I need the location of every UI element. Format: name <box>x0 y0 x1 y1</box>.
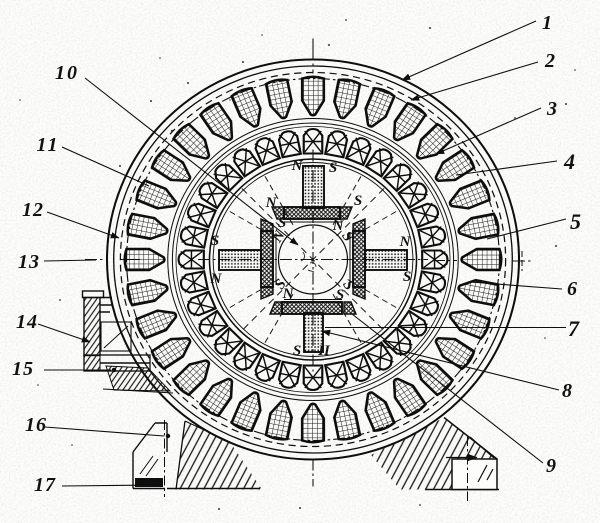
svg-text:2: 2 <box>544 50 555 72</box>
svg-text:15: 15 <box>12 358 34 380</box>
svg-text:4: 4 <box>563 149 575 174</box>
svg-text:N: N <box>291 158 304 174</box>
svg-text:N: N <box>210 271 223 287</box>
svg-text:N: N <box>282 286 295 302</box>
svg-text:11: 11 <box>37 134 60 156</box>
svg-text:9: 9 <box>546 455 556 477</box>
svg-text:14: 14 <box>16 311 38 333</box>
svg-text:10: 10 <box>55 62 79 84</box>
svg-text:12: 12 <box>22 199 44 221</box>
svg-text:S: S <box>329 160 337 176</box>
svg-text:S: S <box>278 215 286 231</box>
svg-text:16: 16 <box>25 414 47 436</box>
svg-text:S: S <box>403 269 411 285</box>
svg-text:13: 13 <box>18 251 40 273</box>
svg-text:3: 3 <box>546 98 557 120</box>
svg-text:17: 17 <box>34 474 56 496</box>
svg-text:1: 1 <box>542 12 552 34</box>
svg-text:7: 7 <box>568 316 580 341</box>
svg-text:8: 8 <box>562 380 572 402</box>
svg-text:6: 6 <box>567 278 577 300</box>
svg-text:N: N <box>332 218 345 234</box>
svg-text:N: N <box>265 195 278 211</box>
svg-text:S: S <box>211 233 219 249</box>
svg-text:II: II <box>317 343 331 359</box>
svg-text:5: 5 <box>570 209 581 234</box>
svg-text:S: S <box>336 287 344 303</box>
svg-text:S: S <box>293 343 301 359</box>
svg-text:N: N <box>399 234 412 250</box>
svg-text:S: S <box>354 193 362 209</box>
